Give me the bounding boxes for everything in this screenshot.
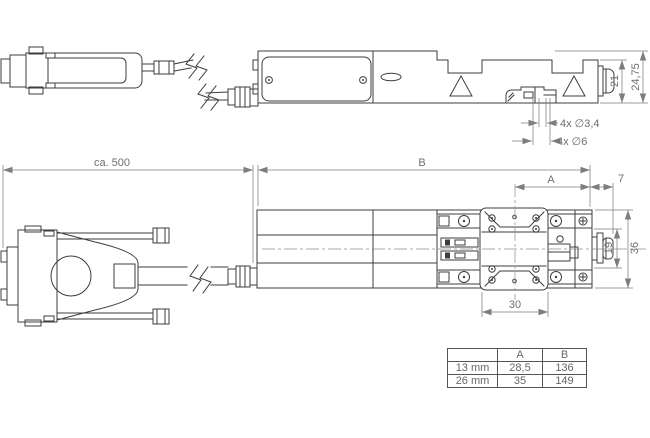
carriage-clamp-detail (506, 87, 556, 103)
cable-break-icon (186, 54, 197, 78)
dim-cable-length: ca. 500 (94, 157, 130, 169)
spec-table: A B 13 mm 28,5 136 26 mm 35 149 (447, 348, 587, 388)
connector-plan-view (1, 226, 169, 326)
side-view: 21 24,75 4x ∅3,4 4x ∅6 (1, 47, 648, 148)
spec-row-label: 13 mm (448, 362, 498, 375)
spec-table-row: 26 mm 35 149 (448, 375, 587, 388)
dim-19: 19 (603, 242, 615, 254)
dim-height-24-75: 24,75 (630, 63, 642, 91)
spec-value-b: 149 (543, 375, 587, 388)
cable-break-icon (198, 84, 209, 108)
spec-value-b: 136 (543, 362, 587, 375)
dim-7: 7 (618, 173, 624, 185)
cable-plan-view (138, 265, 257, 293)
dim-holes-6: 4x ∅6 (557, 136, 587, 148)
spec-table-header-row: A B (448, 349, 587, 362)
connector-side-view (1, 47, 142, 94)
actuator-side-view (253, 51, 614, 103)
datum-triangle (563, 76, 585, 96)
spec-table-row: 13 mm 28,5 136 (448, 362, 587, 375)
cable-side-view (142, 54, 258, 110)
dim-height-21: 21 (609, 75, 621, 87)
technical-drawing-canvas: 21 24,75 4x ∅3,4 4x ∅6 (0, 0, 650, 438)
side-view-dimensions: 21 24,75 4x ∅3,4 4x ∅6 (512, 51, 648, 148)
cable-break-icon (190, 265, 201, 291)
spec-col-b: B (543, 349, 587, 362)
dim-b: B (418, 157, 425, 169)
cover-panel (262, 57, 371, 101)
dim-30: 30 (509, 299, 521, 311)
slot-hole (381, 73, 401, 81)
spec-row-label: 26 mm (448, 375, 498, 388)
dim-holes-3-4: 4x ∅3,4 (560, 118, 600, 130)
spec-col-a: A (498, 349, 543, 362)
datum-triangle (450, 76, 472, 96)
dim-36: 36 (629, 242, 641, 254)
spec-value-a: 35 (498, 375, 543, 388)
plan-view: ca. 500 B A 7 19 36 30 (1, 157, 646, 326)
dim-a: A (547, 174, 555, 186)
spec-value-a: 28,5 (498, 362, 543, 375)
spec-cell-blank (448, 349, 498, 362)
centerlines (262, 184, 646, 300)
